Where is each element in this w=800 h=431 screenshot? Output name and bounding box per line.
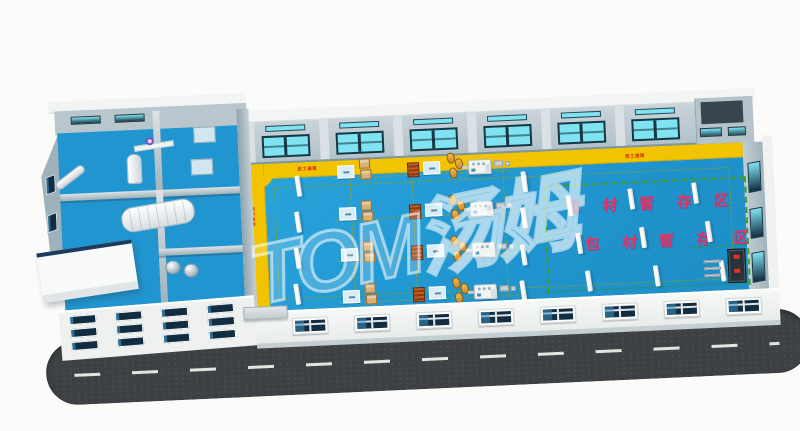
isometric-world: 包 材 暂 存 区 包 材 暂 存 区 员工通道员工通道员工通道员工通道 TOM… [0, 0, 800, 431]
facade-window [416, 311, 453, 330]
annex-facade-window [208, 316, 236, 327]
window-glass-sheen [543, 309, 552, 320]
walkway-label: 员工通道 [297, 165, 317, 172]
factory-3d-render: 包 材 暂 存 区 包 材 暂 存 区 员工通道员工通道员工通道员工通道 TOM… [0, 0, 800, 431]
facade-window-glass [605, 305, 635, 317]
annex-facade-window [209, 329, 237, 340]
window-mullion [743, 300, 745, 311]
window-mullion [681, 303, 683, 314]
facade-window-glass [481, 311, 511, 323]
facade-window-glass [729, 300, 759, 312]
facade-window-glass [419, 314, 449, 326]
window-glass-sheen [667, 304, 676, 315]
window-glass-sheen [419, 315, 428, 326]
annex-facade-window [70, 327, 98, 338]
lift-indicator-light [734, 269, 740, 273]
lift-indicator-light [733, 255, 739, 259]
agitator-unit [191, 158, 214, 175]
walkway-label: 员工通道 [625, 152, 645, 159]
annex-facade-window [117, 336, 145, 347]
annex-facade-window [69, 314, 97, 325]
window-glass-sheen [605, 306, 614, 317]
window-mullion [495, 312, 497, 323]
annex-facade-window [71, 340, 99, 351]
window-mullion [619, 306, 621, 317]
annex-facade-window [161, 307, 189, 318]
annex-facade-window [163, 333, 191, 344]
lift-equipment [727, 248, 747, 283]
window-glass-sheen [729, 301, 738, 312]
facade-window-glass [543, 308, 573, 320]
facade-window [478, 308, 515, 327]
annex-facade-window [162, 320, 190, 331]
facade-window [725, 297, 762, 316]
facade-window-glass [667, 303, 697, 315]
facade-window [663, 299, 700, 318]
agitator-unit [193, 126, 216, 143]
facade-window [540, 305, 577, 324]
annex-facade-window [207, 303, 235, 314]
mixing-tank [126, 154, 142, 185]
annex-facade-window [115, 310, 143, 321]
window-mullion [557, 309, 559, 320]
facade-window [602, 302, 639, 321]
window-mullion [433, 315, 435, 326]
annex-facade-window [116, 323, 144, 334]
window-glass-sheen [481, 312, 490, 323]
